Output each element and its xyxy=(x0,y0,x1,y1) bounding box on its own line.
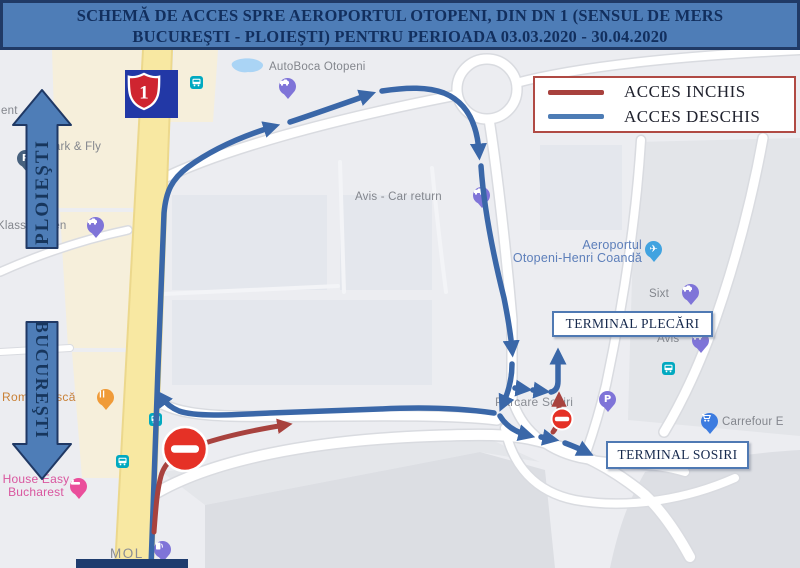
airport-label-line2: Otopeni-Henri Coandă xyxy=(480,252,642,265)
bus-icon xyxy=(149,413,162,426)
car-icon xyxy=(279,78,290,87)
map-label-avis-return: Avis - Car return xyxy=(355,191,442,203)
bus-icon xyxy=(116,455,129,468)
route-shield-icon: 1 xyxy=(125,70,163,112)
restaurant-pin-romaneasca xyxy=(97,389,114,406)
bus-stop-icon xyxy=(190,76,203,89)
legend: ACCES INCHIS ACCES DESCHIS xyxy=(533,76,796,133)
car-icon xyxy=(87,217,98,226)
terminal-plecari-label: TERMINAL PLECĂRI xyxy=(566,316,700,332)
shopping-cart-icon xyxy=(701,413,712,423)
bus-icon xyxy=(662,362,675,375)
airplane-icon: ✈ xyxy=(649,244,657,255)
title-banner: SCHEMĂ DE ACCES SPRE AEROPORTUL OTOPENI,… xyxy=(0,0,800,50)
terminal-sosiri-label: TERMINAL SOSIRI xyxy=(618,447,738,463)
route-1-shield: 1 xyxy=(125,70,178,118)
car-icon xyxy=(473,187,484,196)
car-rental-pin-avis-return xyxy=(473,187,490,204)
bed-icon xyxy=(70,478,81,487)
terminal-plecari-box: TERMINAL PLECĂRI xyxy=(552,311,713,337)
legend-row-closed: ACCES INCHIS xyxy=(548,82,794,102)
map-label-airport: Aeroportul Otopeni-Henri Coandă xyxy=(480,239,642,265)
open-access-label: ACCES DESCHIS xyxy=(624,107,760,127)
terminal-sosiri-box: TERMINAL SOSIRI xyxy=(606,441,749,469)
house-easy-line2: Bucharest xyxy=(0,486,78,499)
car-rental-pin-autoboca xyxy=(279,78,296,95)
map-label-sixt: Sixt xyxy=(649,288,669,300)
bottom-banner-edge xyxy=(76,559,188,568)
fork-knife-icon xyxy=(97,389,107,399)
access-scheme-map: ent Park & Fly Klass Wagen AutoBoca Otop… xyxy=(0,0,800,568)
legend-row-open: ACCES DESCHIS xyxy=(548,107,794,127)
parking-pin-parcare-sosiri: P xyxy=(599,391,616,408)
airport-pin: ✈ xyxy=(645,241,662,258)
map-label-carrefour: Carrefour E xyxy=(722,416,784,428)
map-label-autoboca: AutoBoca Otopeni xyxy=(269,61,366,73)
title-line1: SCHEMĂ DE ACCES SPRE AEROPORTUL OTOPENI,… xyxy=(3,5,797,26)
bus-icon xyxy=(190,76,203,89)
closed-access-label: ACCES INCHIS xyxy=(624,82,746,102)
gas-station-pin-mol xyxy=(154,541,171,558)
map-label-romaneasca: Românească xyxy=(2,390,76,404)
map-label-house-easy: House Easy Bucharest xyxy=(0,473,78,499)
open-access-swatch xyxy=(548,114,604,119)
car-rental-pin-sixt xyxy=(682,284,699,301)
car-icon xyxy=(682,284,693,293)
map-label-park-fly: Park & Fly xyxy=(46,141,101,153)
closed-access-swatch xyxy=(548,90,604,95)
bus-stop-icon xyxy=(116,455,129,468)
car-rental-pin-klass-wagen xyxy=(87,217,104,234)
map-label-parcare-sosiri: Parcare Sosiri xyxy=(495,395,573,409)
fuel-pump-icon xyxy=(154,541,164,551)
map-label-klass-wagen: Klass Wagen xyxy=(0,220,67,232)
route-number: 1 xyxy=(139,83,149,104)
title-line2: BUCUREŞTI - PLOIEŞTI) PENTRU PERIOADA 03… xyxy=(3,26,797,47)
map-label-ent: ent xyxy=(1,105,18,117)
hotel-pin-house-easy xyxy=(70,478,87,495)
carrefour-pin xyxy=(701,413,718,430)
bus-stop-icon xyxy=(662,362,675,375)
bus-stop-icon xyxy=(149,413,162,426)
parking-icon: P xyxy=(22,153,29,164)
parking-icon: P xyxy=(604,394,611,405)
parking-pin-park-fly: P xyxy=(17,150,34,167)
